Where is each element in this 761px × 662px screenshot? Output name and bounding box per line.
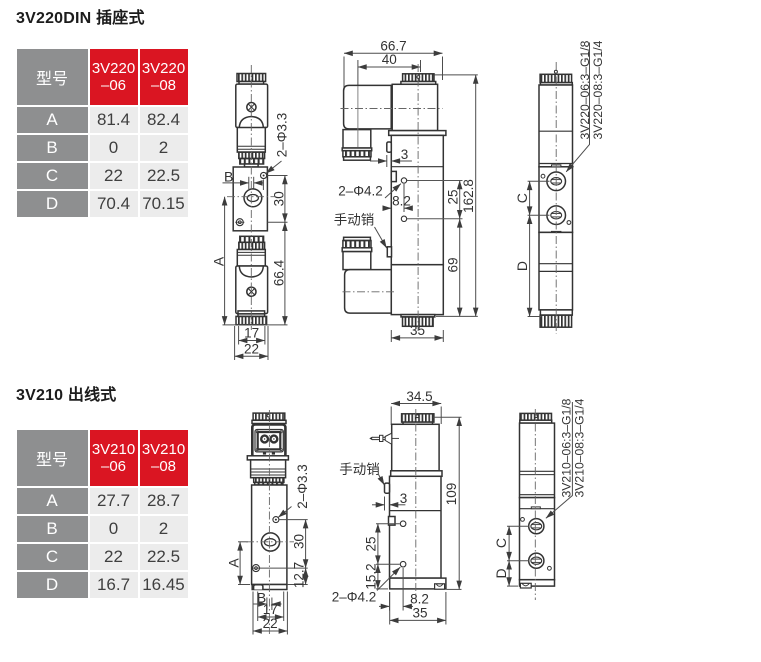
svg-text:B: B: [224, 168, 233, 184]
svg-text:12.7: 12.7: [292, 562, 307, 588]
svg-text:D: D: [493, 568, 509, 578]
svg-text:2–Φ3.3: 2–Φ3.3: [275, 113, 290, 158]
svg-text:109: 109: [444, 483, 459, 506]
svg-text:40: 40: [382, 52, 397, 67]
svg-text:25: 25: [364, 536, 379, 551]
svg-text:30: 30: [271, 191, 286, 206]
svg-text:35: 35: [412, 605, 427, 620]
svg-text:C: C: [493, 538, 509, 548]
svg-text:22: 22: [263, 616, 278, 631]
svg-text:A: A: [225, 558, 241, 568]
svg-text:D: D: [514, 261, 530, 271]
svg-text:3V220–06:3–G1/8: 3V220–06:3–G1/8: [578, 40, 592, 139]
svg-text:17: 17: [263, 602, 278, 617]
svg-text:162.8: 162.8: [461, 179, 476, 213]
svg-text:66.7: 66.7: [380, 38, 406, 53]
svg-text:69: 69: [445, 257, 460, 272]
svg-text:66.4: 66.4: [271, 259, 286, 286]
svg-text:3V210–08:3–G1/4: 3V210–08:3–G1/4: [572, 398, 586, 497]
svg-text:8.2: 8.2: [410, 591, 429, 606]
svg-text:34.5: 34.5: [406, 389, 432, 404]
svg-text:2–Φ4.2: 2–Φ4.2: [332, 590, 377, 605]
svg-text:2–Φ3.3: 2–Φ3.3: [295, 464, 310, 509]
svg-text:35: 35: [410, 323, 425, 338]
svg-text:2–Φ4.2: 2–Φ4.2: [338, 183, 383, 198]
svg-text:手动销: 手动销: [334, 213, 375, 228]
svg-text:3V220–08:3–G1/4: 3V220–08:3–G1/4: [591, 40, 605, 139]
svg-text:手动销: 手动销: [339, 462, 380, 477]
svg-text:25: 25: [445, 189, 460, 204]
svg-text:3: 3: [400, 491, 408, 506]
svg-text:3: 3: [401, 147, 409, 162]
svg-text:8.2: 8.2: [392, 194, 411, 209]
svg-text:15.2: 15.2: [364, 563, 379, 589]
svg-text:A: A: [210, 256, 226, 266]
svg-text:C: C: [514, 193, 530, 203]
svg-text:22: 22: [244, 341, 259, 356]
